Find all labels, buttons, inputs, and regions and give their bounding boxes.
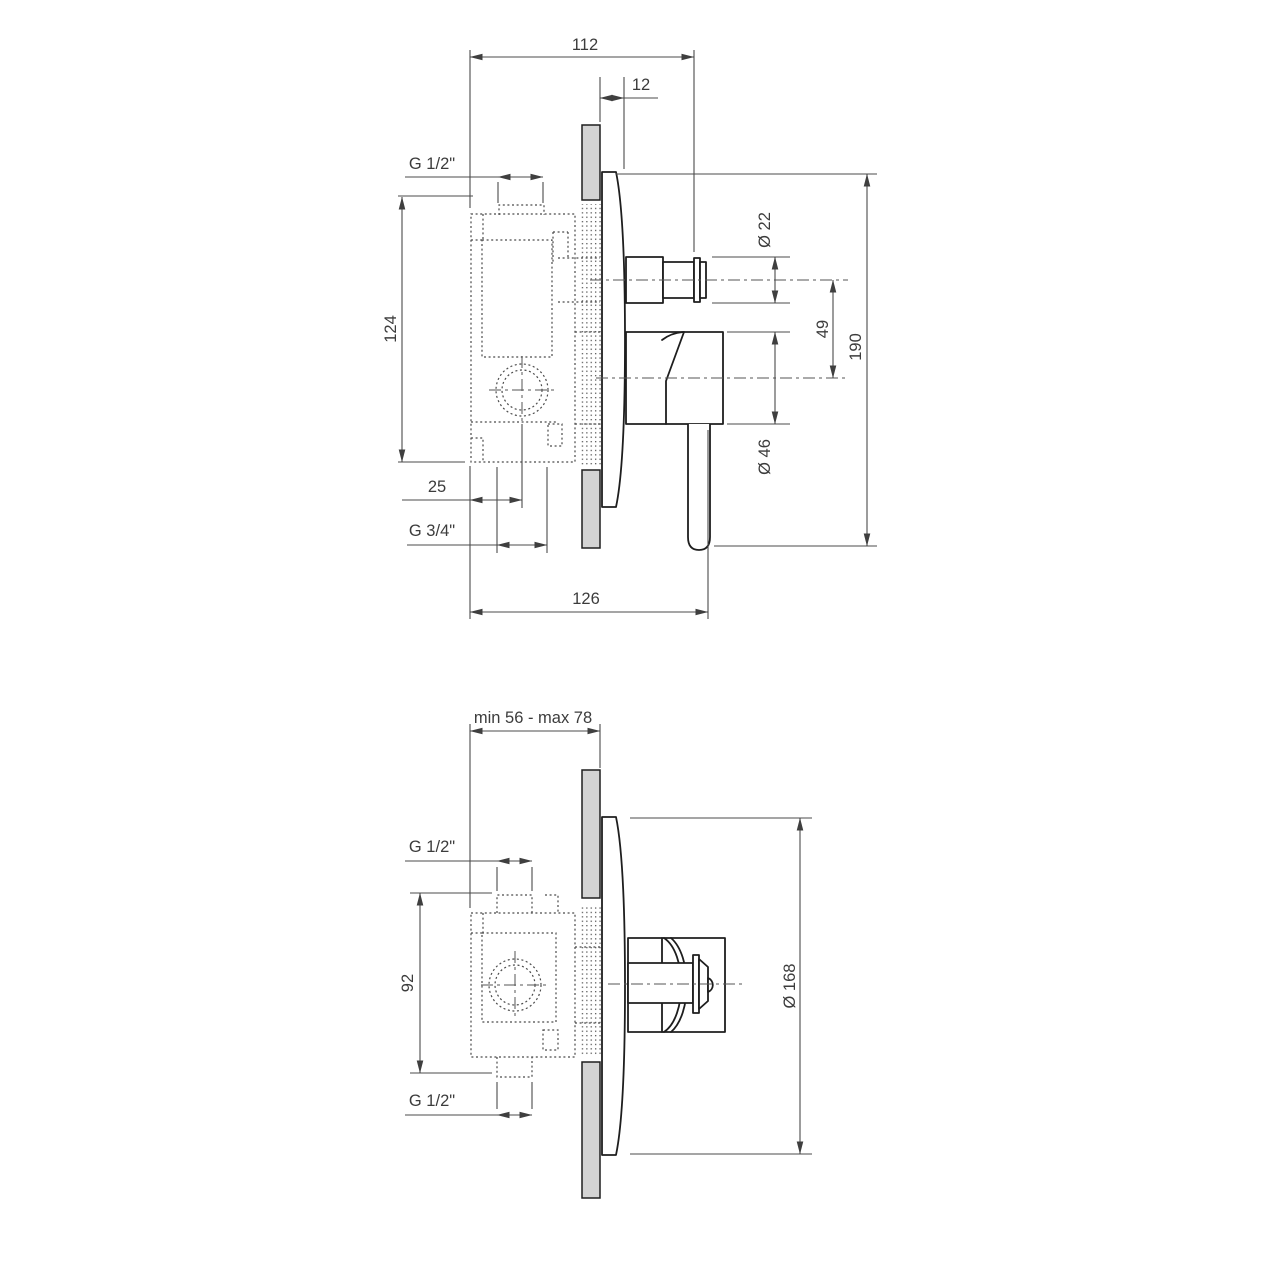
dim-label-height-92: 92 bbox=[399, 974, 417, 992]
dim-label-plate-diameter: Ø 168 bbox=[781, 964, 799, 1009]
concealed-valve-body-hidden-lower bbox=[471, 895, 600, 1077]
wall-section bbox=[581, 125, 601, 548]
dim-label-thread-bottom: G 1/2" bbox=[409, 1092, 455, 1110]
dim-label-spacing-49: 49 bbox=[814, 320, 832, 338]
dim-label-offset-25: 25 bbox=[428, 478, 446, 496]
dim-label-inlet-thread: G 1/2" bbox=[409, 155, 455, 173]
plaster-infill bbox=[581, 204, 601, 466]
concealed-valve-body-hidden bbox=[471, 205, 600, 462]
lower-view: min 56 - max 78 G 1/2" 92 G 1/2" Ø 168 bbox=[399, 709, 812, 1198]
dim-label-handle-diameter: Ø 46 bbox=[756, 439, 774, 475]
dim-label-outlet-thread: G 3/4" bbox=[409, 522, 455, 540]
dim-label-depth-126: 126 bbox=[572, 590, 600, 608]
dim-label-height-190: 190 bbox=[847, 333, 865, 361]
wall-upper-segment-lower bbox=[582, 770, 600, 898]
handle-lever bbox=[688, 424, 710, 550]
wall-upper-segment bbox=[582, 125, 600, 200]
dim-label-height-124: 124 bbox=[382, 315, 400, 343]
handle-assembly-lower bbox=[628, 938, 725, 1032]
wall-lower-segment-lower bbox=[582, 1062, 600, 1198]
upper-view: 112 12 G 1/2" 124 25 G 3/4" 126 Ø 22 49 … bbox=[382, 36, 877, 619]
wall-lower-segment bbox=[582, 470, 600, 548]
cartridge-crosshair-lower bbox=[481, 951, 549, 1019]
knob-tip bbox=[708, 978, 713, 992]
plaster-infill-lower bbox=[581, 906, 601, 1056]
dim-label-depth-range: min 56 - max 78 bbox=[474, 709, 592, 727]
dim-label-thread-top: G 1/2" bbox=[409, 838, 455, 856]
technical-drawing: 112 12 G 1/2" 124 25 G 3/4" 126 Ø 22 49 … bbox=[0, 0, 1280, 1280]
cartridge-crosshair bbox=[489, 356, 556, 425]
dim-label-knob-diameter: Ø 22 bbox=[756, 212, 774, 248]
escutcheon-plate bbox=[602, 172, 625, 507]
knob-stem bbox=[628, 963, 693, 1003]
dim-label-width-112: 112 bbox=[572, 36, 598, 54]
escutcheon-plate-lower bbox=[602, 817, 625, 1155]
dim-label-offset-12: 12 bbox=[632, 76, 650, 94]
wall-section-lower bbox=[581, 770, 601, 1198]
page: 112 12 G 1/2" 124 25 G 3/4" 126 Ø 22 49 … bbox=[0, 0, 1280, 1280]
